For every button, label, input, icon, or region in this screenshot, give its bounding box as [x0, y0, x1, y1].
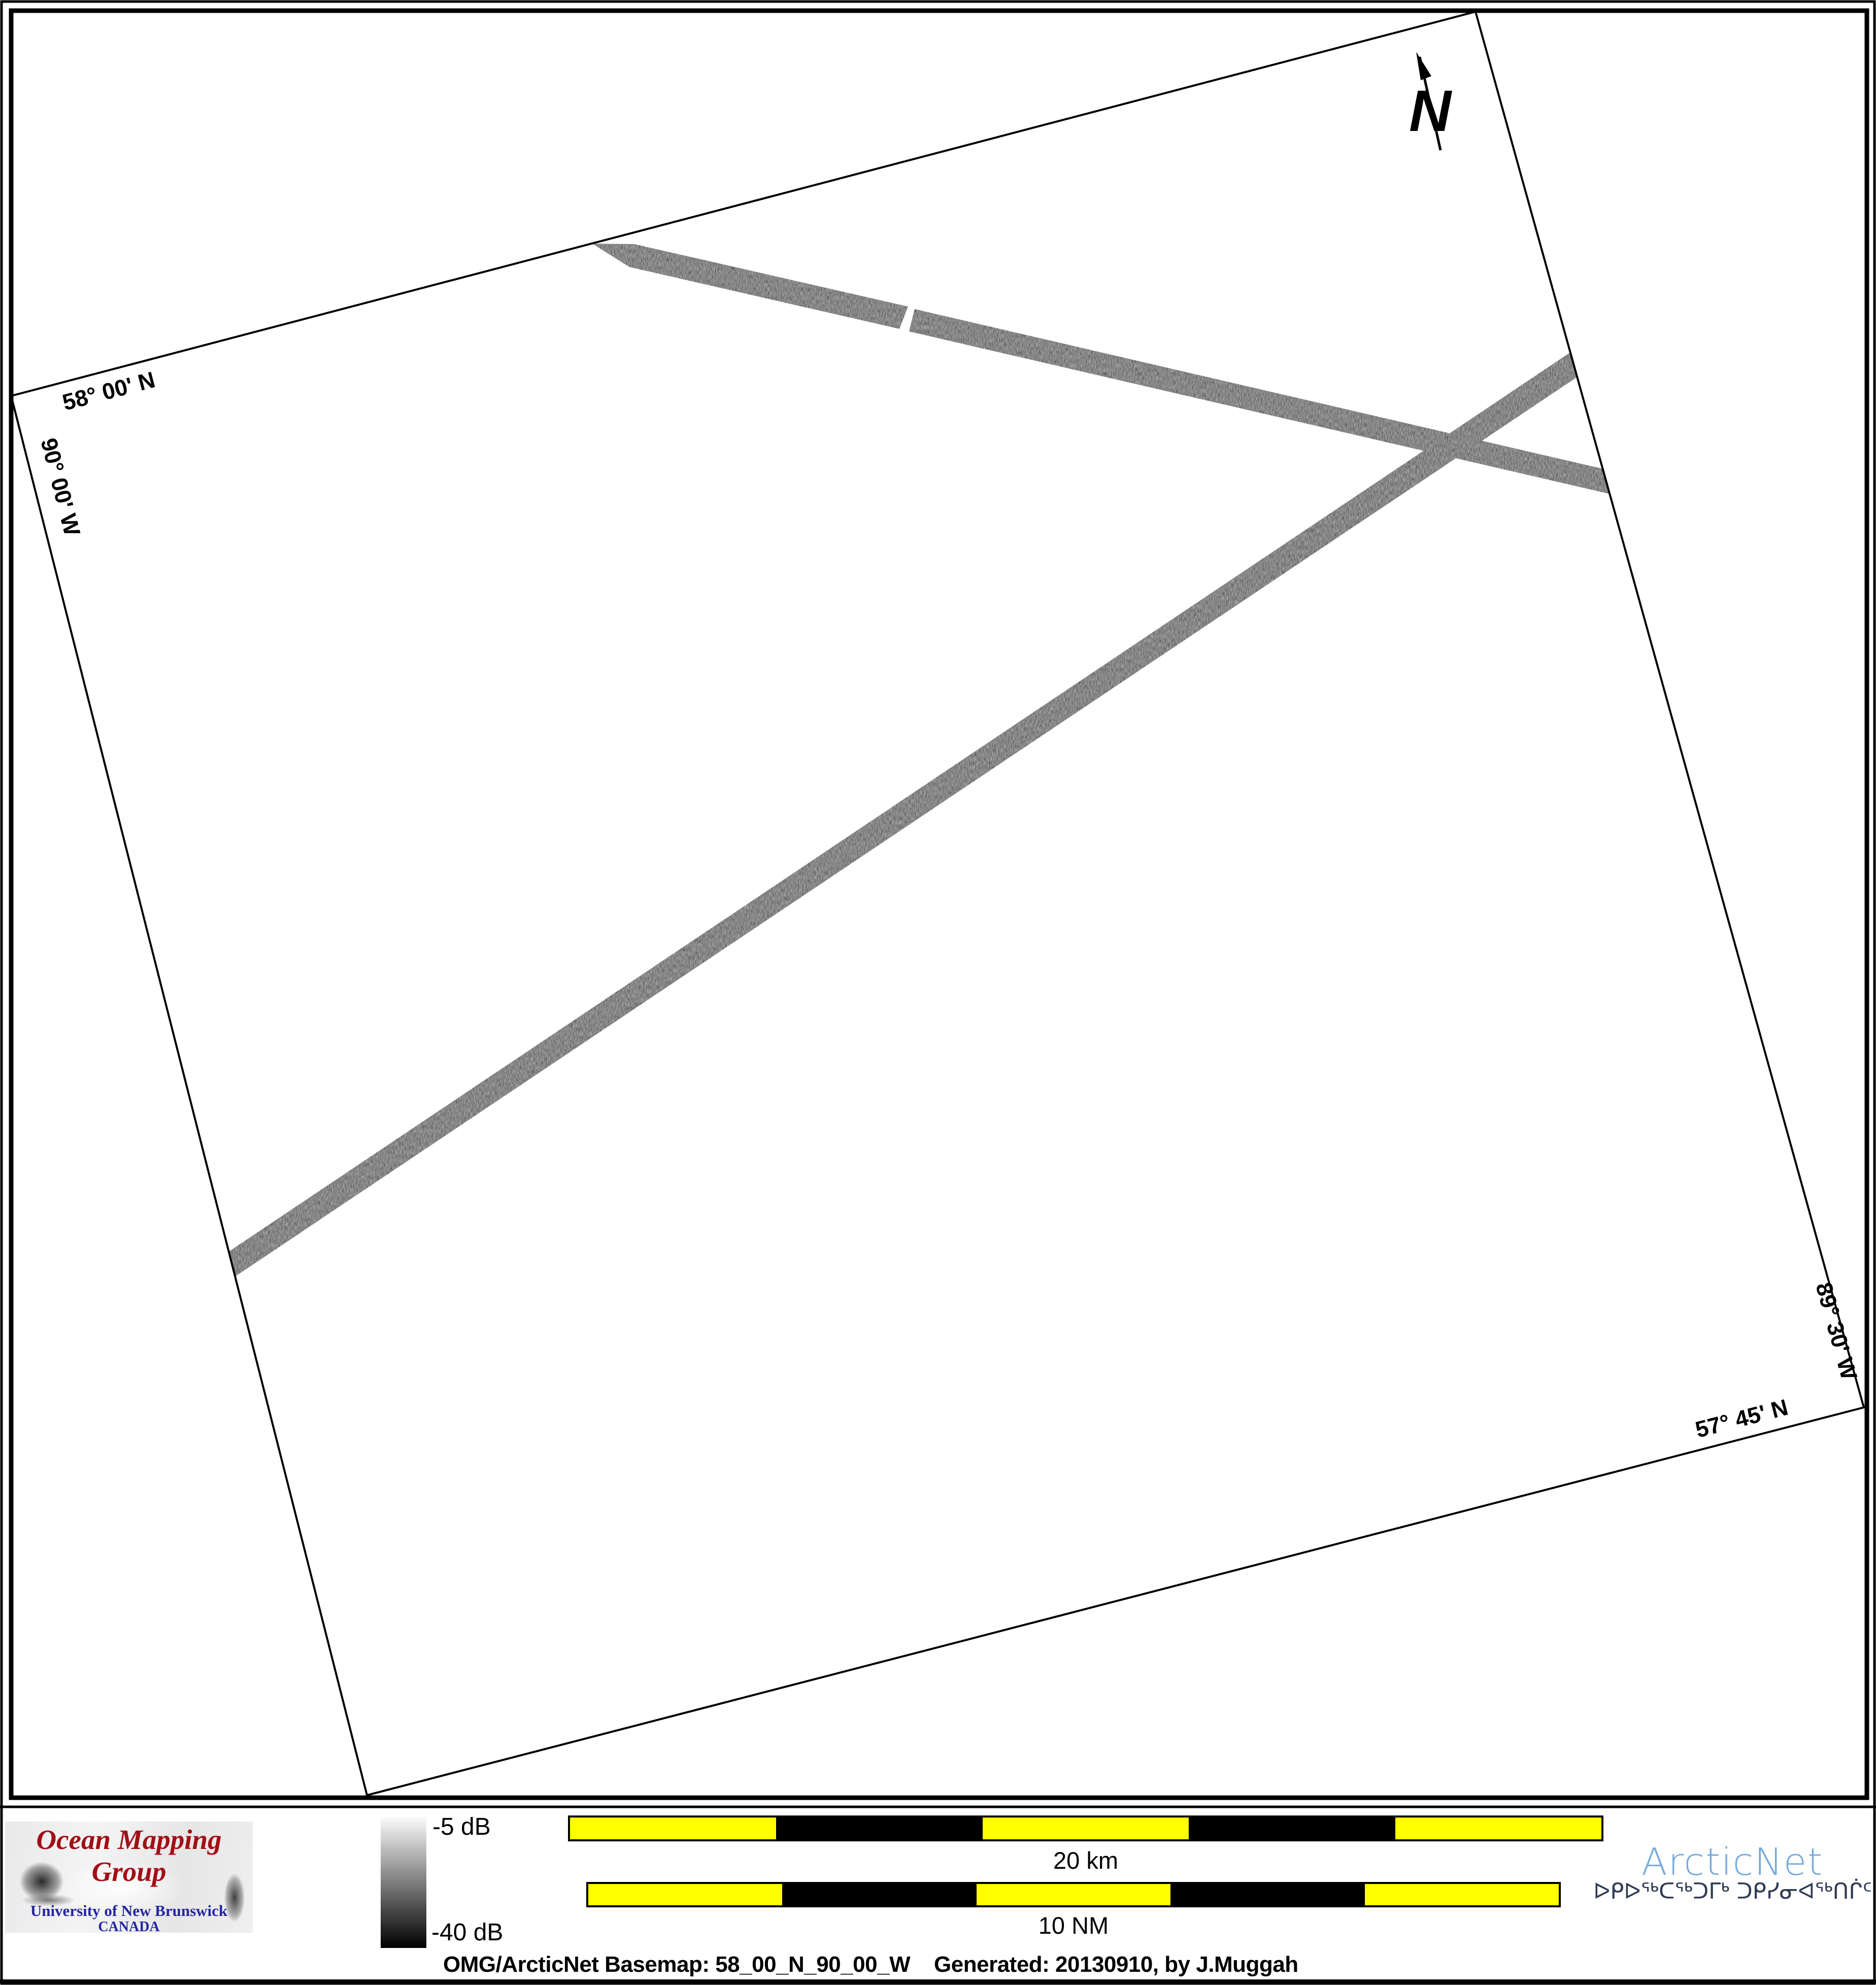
scalebar-segment — [1189, 1818, 1395, 1839]
outer-border — [2, 2, 1874, 1983]
basemap-page: 58° 00' N 90° 00' W 89° 30' W 57° 45' N … — [0, 0, 1876, 1985]
backscatter-colorbar — [381, 1817, 426, 1948]
scalebar-nm-label: 10 NM — [586, 1911, 1561, 1939]
scalebar-segment — [782, 1884, 976, 1905]
colorbar-label-bottom: -40 dB — [431, 1919, 503, 1946]
scalebar-segment — [1395, 1818, 1601, 1839]
longitude-label-right: 89° 30' W — [1811, 1280, 1862, 1383]
basemap-caption: OMG/ArcticNet Basemap: 58_00_N_90_00_W G… — [443, 1952, 1298, 1977]
colorbar-label-top: -5 dB — [432, 1813, 491, 1841]
arcticnet-logo: ArcticNet — [1641, 1840, 1823, 1884]
swath-line-b — [208, 340, 1602, 1286]
map-canvas: 58° 00' N 90° 00' W 89° 30' W 57° 45' N … — [0, 0, 1876, 1985]
scalebar-segment — [1170, 1884, 1364, 1905]
scalebar-segment — [570, 1818, 776, 1839]
north-arrow-letter: N — [1409, 79, 1453, 144]
latitude-label-bottom: 57° 45' N — [1693, 1394, 1791, 1443]
omg-logo-university: University of New Brunswick — [5, 1902, 253, 1920]
graticule-frame — [11, 12, 1864, 1795]
sonar-swath-group — [208, 244, 1638, 1286]
scalebar-km — [568, 1815, 1603, 1841]
scalebar-segment — [776, 1818, 982, 1839]
scalebar-segment — [983, 1818, 1189, 1839]
north-arrow: N — [1409, 52, 1453, 150]
omg-logo-title: Ocean Mapping Group — [5, 1824, 253, 1888]
arcticnet-inuktitut-text: ᐅᑭᐅᖅᑕᖅᑐᒥᒃ ᑐᑭᓯᓂᐊᖅᑎᒌᑦ — [1593, 1879, 1872, 1904]
omg-logo: Ocean Mapping Group University of New Br… — [5, 1822, 253, 1933]
scalebar-segment — [1365, 1884, 1559, 1905]
north-arrow-head — [1416, 52, 1431, 80]
swath-line-a-part1 — [592, 244, 908, 329]
omg-logo-country: CANADA — [5, 1919, 253, 1935]
latitude-label-top: 58° 00' N — [60, 366, 158, 416]
scalebar-nm — [586, 1882, 1561, 1907]
scalebar-segment — [977, 1884, 1170, 1905]
scalebar-segment — [588, 1884, 782, 1905]
scalebar-km-label: 20 km — [568, 1846, 1603, 1874]
map-inner-border — [11, 11, 1867, 1798]
